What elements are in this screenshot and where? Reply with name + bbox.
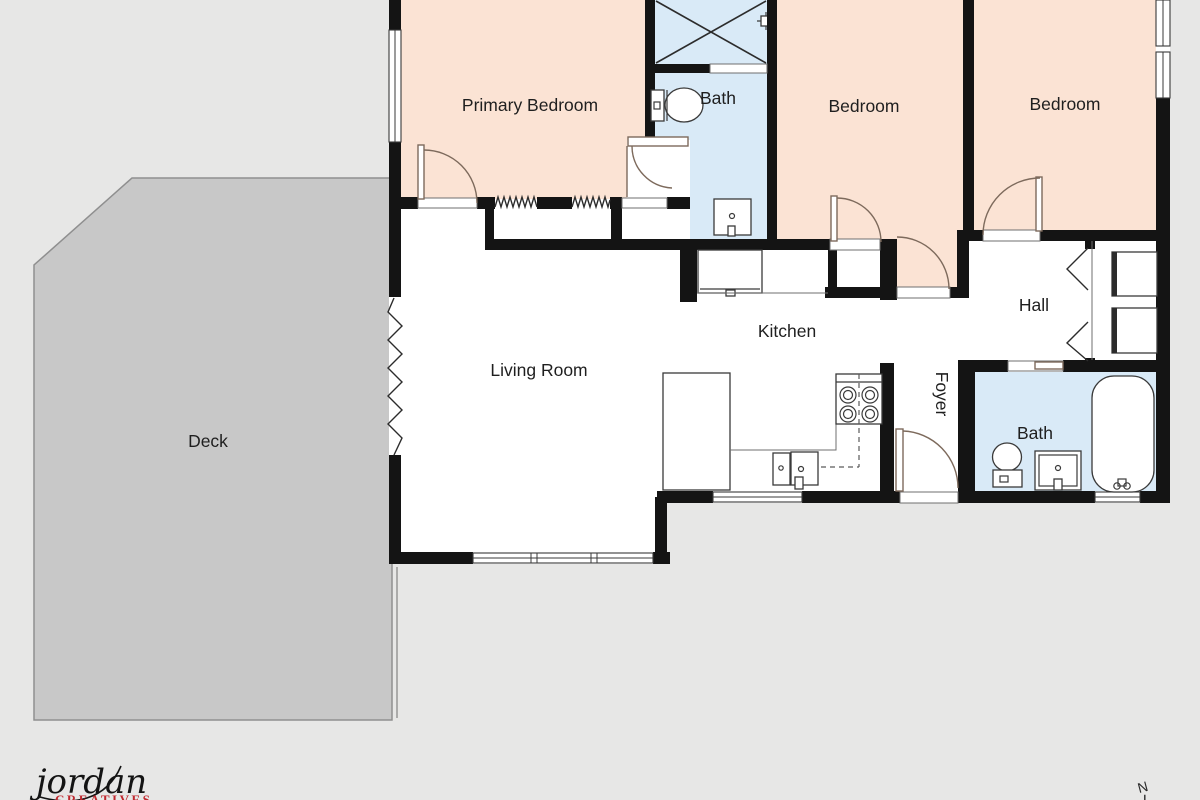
label-bath-bottom: Bath [1017, 423, 1053, 443]
label-hall: Hall [1019, 295, 1049, 315]
window-primary-left [389, 30, 401, 142]
logo-tagline-text: CREATIVES [55, 792, 152, 800]
shower-opening [710, 64, 767, 73]
window-bath-bottom [1095, 492, 1140, 502]
label-deck: Deck [188, 431, 228, 451]
label-bedroom-middle: Bedroom [828, 96, 899, 116]
label-bedroom-right: Bedroom [1029, 94, 1100, 114]
label-bath-top: Bath [700, 88, 736, 108]
bedroom-right-floor [974, 0, 1156, 231]
label-living-room: Living Room [490, 360, 587, 380]
kitchen-island [663, 373, 730, 490]
label-primary-bedroom: Primary Bedroom [462, 95, 598, 115]
label-foyer: Foyer [932, 372, 952, 417]
kitchen-sink-icon [791, 452, 818, 489]
fridge-icon [698, 250, 762, 296]
window-living-room [473, 553, 653, 563]
closet-shelf-bottom [1112, 308, 1157, 353]
logo: jordan CREATIVES [29, 762, 152, 800]
toilet-icon-bottom [993, 443, 1023, 487]
bathtub-icon [1092, 376, 1154, 492]
floorplan-page: Primary Bedroom Bath Bedroom Bedroom Hal… [0, 0, 1200, 800]
stove-icon [836, 374, 882, 424]
dishwasher-icon [773, 453, 790, 485]
window-kitchen [713, 492, 802, 502]
closet-shelf-top [1112, 252, 1157, 296]
label-kitchen: Kitchen [758, 321, 816, 341]
floorplan-svg: Primary Bedroom Bath Bedroom Bedroom Hal… [0, 0, 1200, 800]
sink-icon-top [714, 199, 751, 236]
vanity-sink-icon [1035, 451, 1081, 490]
bedroom-middle-floor-extension [890, 240, 957, 288]
hall-bath-door [1008, 361, 1063, 371]
toilet-icon-top [651, 88, 703, 122]
bedroom-middle-floor [777, 0, 963, 240]
